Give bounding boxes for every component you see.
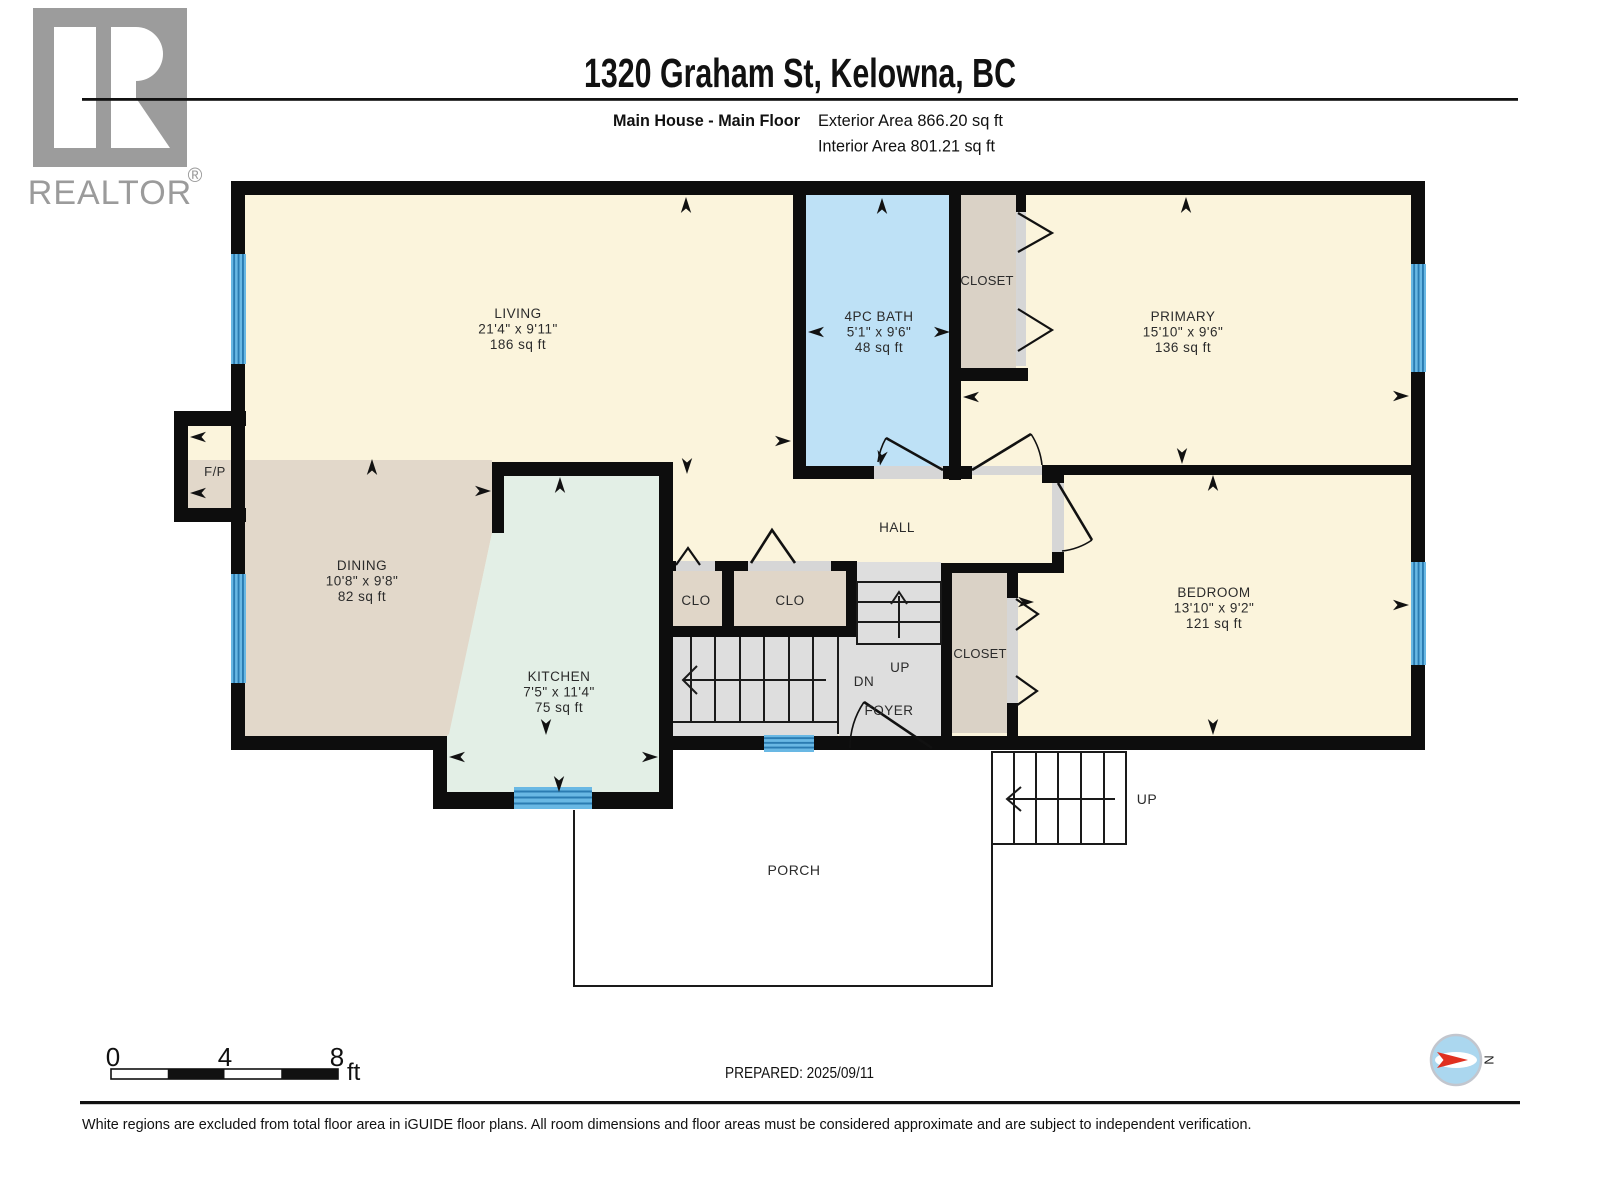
- svg-text:BEDROOM: BEDROOM: [1177, 585, 1250, 600]
- svg-text:PREPARED: 2025/09/11: PREPARED: 2025/09/11: [725, 1065, 874, 1082]
- svg-text:Exterior Area 866.20 sq ft: Exterior Area 866.20 sq ft: [818, 111, 1003, 130]
- svg-text:FOYER: FOYER: [864, 703, 913, 718]
- svg-text:82 sq ft: 82 sq ft: [338, 589, 386, 604]
- svg-text:UP: UP: [1137, 791, 1157, 807]
- svg-text:White regions are excluded fro: White regions are excluded from total fl…: [82, 1117, 1251, 1133]
- svg-text:13'10" x 9'2": 13'10" x 9'2": [1174, 601, 1255, 616]
- svg-text:10'8" x 9'8": 10'8" x 9'8": [326, 574, 399, 589]
- svg-text:PRIMARY: PRIMARY: [1151, 309, 1216, 324]
- svg-text:ft: ft: [347, 1059, 361, 1086]
- svg-text:CLOSET: CLOSET: [960, 273, 1013, 288]
- svg-text:REALTOR: REALTOR: [28, 174, 192, 212]
- svg-text:Interior Area 801.21 sq ft: Interior Area 801.21 sq ft: [818, 137, 995, 156]
- svg-text:75 sq ft: 75 sq ft: [535, 700, 583, 715]
- svg-text:8: 8: [330, 1042, 344, 1072]
- svg-text:HALL: HALL: [879, 520, 915, 535]
- svg-text:DN: DN: [854, 674, 875, 689]
- svg-text:CLOSET: CLOSET: [953, 646, 1006, 661]
- svg-text:N: N: [1482, 1055, 1497, 1064]
- svg-text:15'10" x 9'6": 15'10" x 9'6": [1143, 325, 1224, 340]
- svg-text:F/P: F/P: [204, 464, 226, 479]
- svg-text:21'4" x 9'11": 21'4" x 9'11": [478, 322, 558, 337]
- svg-text:4PC BATH: 4PC BATH: [844, 309, 913, 324]
- svg-text:Main House - Main Floor: Main House - Main Floor: [613, 111, 800, 130]
- svg-text:KITCHEN: KITCHEN: [528, 669, 591, 684]
- svg-text:DINING: DINING: [337, 558, 387, 573]
- svg-text:136 sq ft: 136 sq ft: [1155, 340, 1211, 355]
- svg-text:CLO: CLO: [681, 593, 710, 608]
- svg-text:CLO: CLO: [775, 593, 804, 608]
- svg-text:1320 Graham St, Kelowna, BC: 1320 Graham St, Kelowna, BC: [584, 50, 1016, 96]
- svg-text:LIVING: LIVING: [494, 306, 541, 321]
- svg-text:4: 4: [218, 1042, 232, 1072]
- svg-text:®: ®: [188, 165, 203, 187]
- svg-text:121 sq ft: 121 sq ft: [1186, 616, 1242, 631]
- svg-text:186 sq ft: 186 sq ft: [490, 337, 546, 352]
- svg-text:UP: UP: [890, 660, 910, 675]
- svg-text:PORCH: PORCH: [767, 862, 820, 878]
- svg-text:5'1" x 9'6": 5'1" x 9'6": [847, 325, 912, 340]
- svg-text:0: 0: [106, 1042, 120, 1072]
- svg-text:7'5" x 11'4": 7'5" x 11'4": [523, 685, 595, 700]
- svg-text:48 sq ft: 48 sq ft: [855, 340, 903, 355]
